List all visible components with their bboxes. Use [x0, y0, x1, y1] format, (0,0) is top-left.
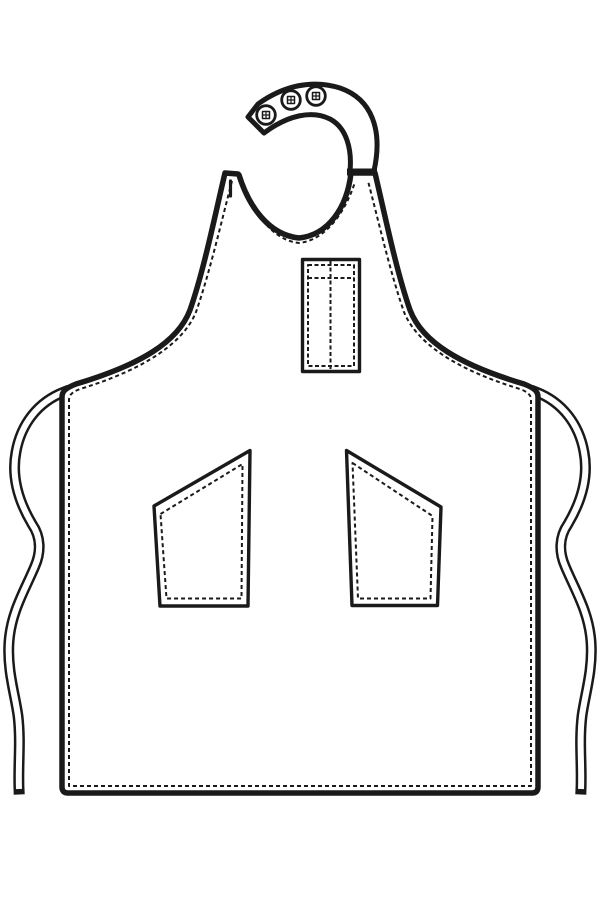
chest-pocket	[303, 260, 360, 372]
snap-button	[257, 106, 276, 125]
apron-technical-drawing	[0, 0, 600, 900]
snap-button	[282, 91, 301, 110]
snap-button	[307, 87, 326, 106]
apron-illustration-canvas	[0, 0, 600, 900]
